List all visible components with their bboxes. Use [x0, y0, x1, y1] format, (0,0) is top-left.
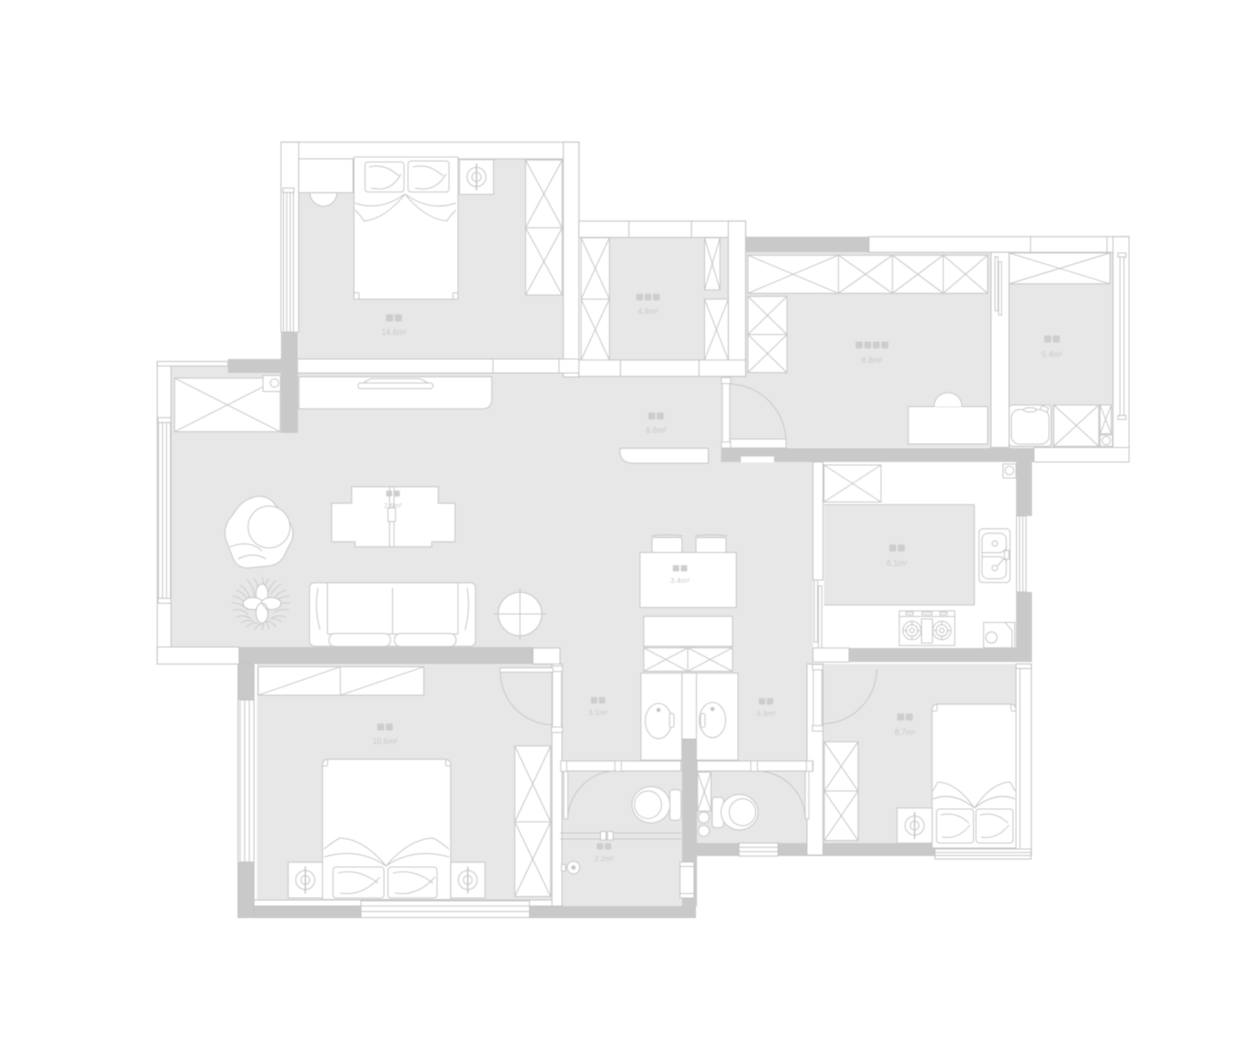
svg-text:4.6m²: 4.6m² [638, 307, 659, 316]
svg-text:8.7m²: 8.7m² [895, 728, 916, 737]
svg-text:6.6m²: 6.6m² [646, 426, 667, 435]
svg-text:2.6m²: 2.6m² [384, 503, 403, 510]
svg-text:3.4m²: 3.4m² [670, 576, 690, 585]
svg-text:3.3m²: 3.3m² [756, 709, 776, 718]
svg-text:8.8m²: 8.8m² [862, 356, 883, 365]
svg-text:10.6m²: 10.6m² [373, 737, 398, 746]
svg-text:14.6m²: 14.6m² [382, 328, 407, 337]
svg-text:3.1m²: 3.1m² [588, 708, 608, 717]
svg-text:2.2m²: 2.2m² [594, 854, 614, 863]
svg-text:6.1m²: 6.1m² [887, 559, 908, 568]
svg-text:5.4m²: 5.4m² [1042, 350, 1063, 359]
